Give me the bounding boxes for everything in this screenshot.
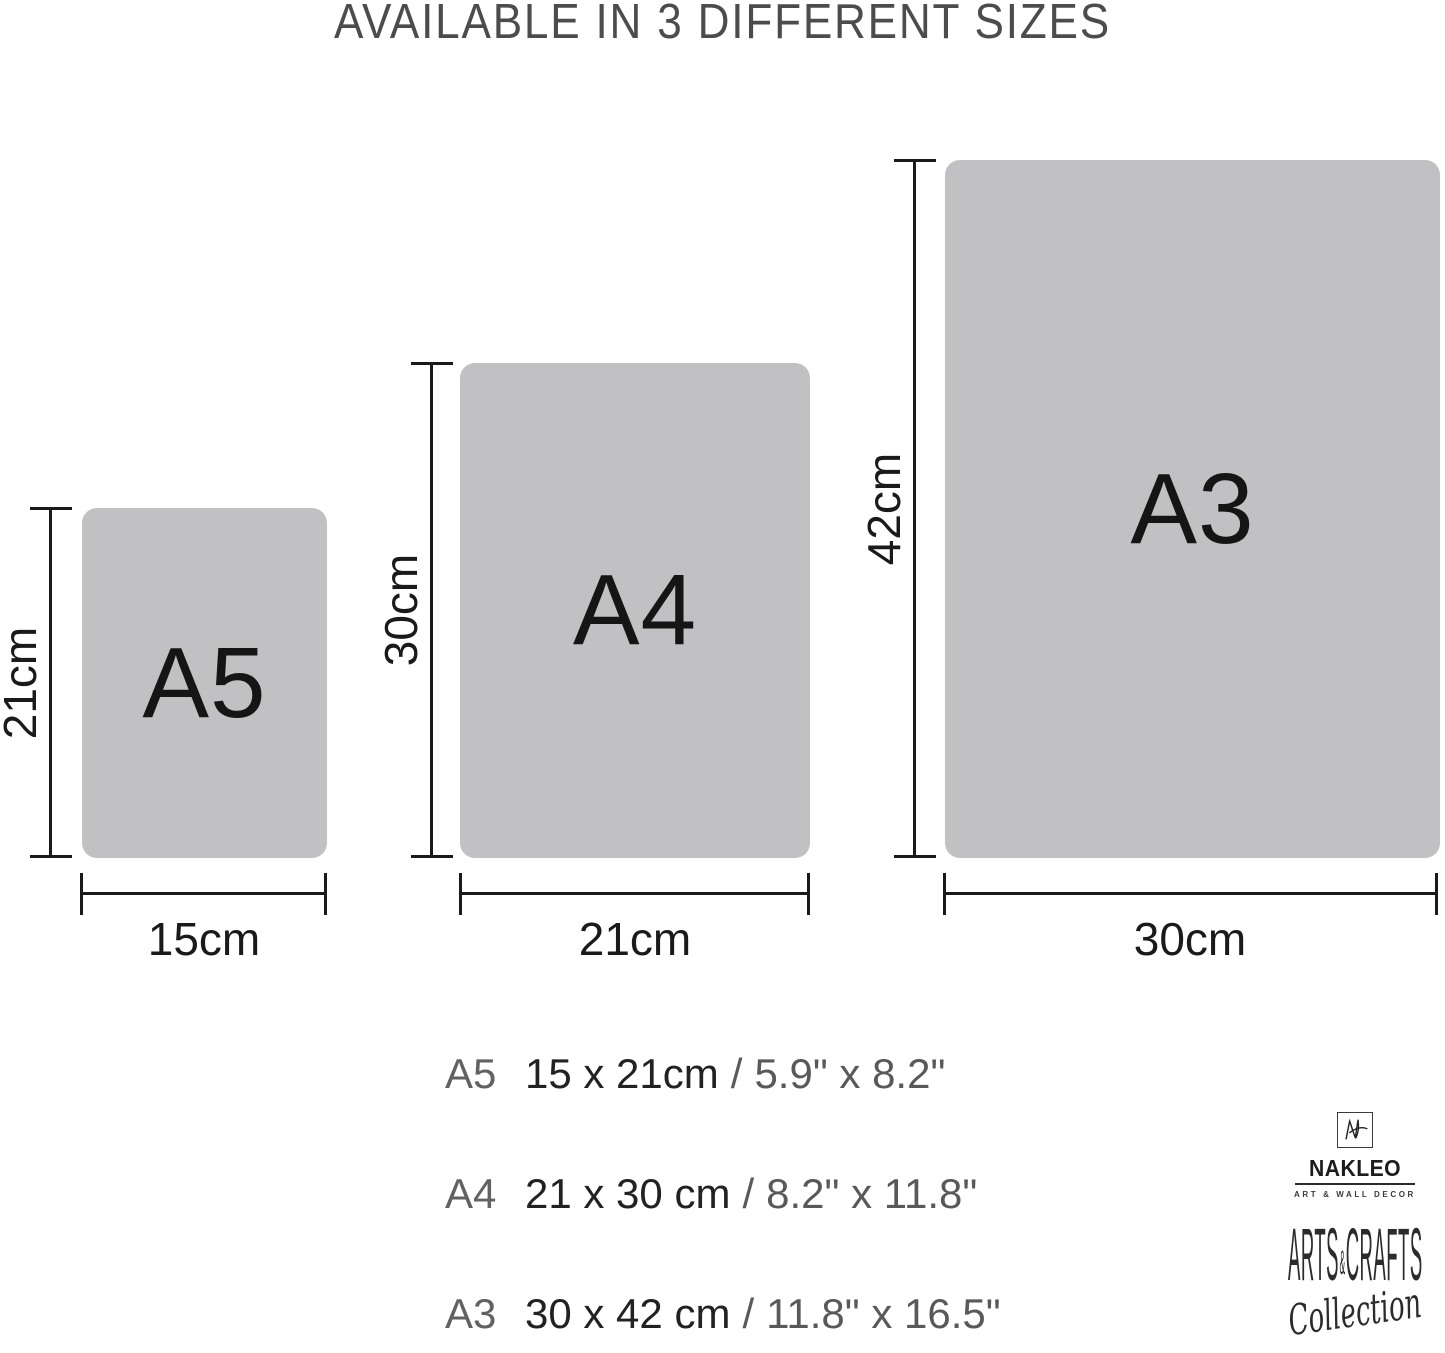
size-panel-a5: A5 xyxy=(82,508,327,858)
legend-imperial-a3: 11.8" x 16.5" xyxy=(766,1290,1001,1338)
dimension-cap xyxy=(459,873,462,915)
a4-width-dimension-line xyxy=(459,892,810,895)
dimension-cap xyxy=(894,159,936,162)
a4-width-label: 21cm xyxy=(515,912,755,966)
legend-separator: / xyxy=(731,1050,743,1098)
legend-imperial-a4: 8.2" x 11.8" xyxy=(766,1170,977,1218)
dimension-cap xyxy=(80,873,83,915)
panel-a3-label: A3 xyxy=(1130,452,1254,567)
brand-name: NAKLEO xyxy=(1309,1157,1401,1179)
ampersand-glyph: & xyxy=(1339,1243,1345,1283)
size-panel-a3: A3 xyxy=(945,160,1440,858)
page-title: AVAILABLE IN 3 DIFFERENT SIZES xyxy=(72,0,1373,50)
brand-divider xyxy=(1295,1183,1415,1185)
dimension-cap xyxy=(943,873,946,915)
dimension-cap xyxy=(411,855,453,858)
legend-code-a5: A5 xyxy=(445,1050,525,1098)
a5-width-dimension-line xyxy=(80,892,327,895)
collection-part1: ARTS xyxy=(1288,1227,1339,1283)
panel-a5-label: A5 xyxy=(142,626,266,741)
a4-height-dimension-line xyxy=(430,362,433,858)
dimension-cap xyxy=(1435,873,1438,915)
legend-row-a3: A3 30 x 42 cm / 11.8" x 16.5" xyxy=(445,1290,1001,1338)
nl-monogram-icon xyxy=(1337,1112,1373,1148)
size-panel-a4: A4 xyxy=(460,363,810,858)
dimension-cap xyxy=(894,855,936,858)
a5-height-label: 21cm xyxy=(0,627,47,739)
legend-code-a4: A4 xyxy=(445,1170,525,1218)
legend-code-a3: A3 xyxy=(445,1290,525,1338)
panel-a4-label: A4 xyxy=(573,553,697,668)
a3-height-label: 42cm xyxy=(857,453,911,565)
size-guide-infographic: AVAILABLE IN 3 DIFFERENT SIZES A5 21cm 1… xyxy=(0,0,1445,1353)
legend-row-a4: A4 21 x 30 cm / 8.2" x 11.8" xyxy=(445,1170,977,1218)
legend-metric-a3: 30 x 42 cm xyxy=(525,1290,730,1338)
dimension-cap xyxy=(30,855,72,858)
dimension-cap xyxy=(30,507,72,510)
a5-width-label: 15cm xyxy=(84,912,324,966)
collection-part2: CRAFTS xyxy=(1345,1227,1422,1283)
a3-height-dimension-line xyxy=(913,159,916,858)
a4-height-label: 30cm xyxy=(374,554,428,666)
a5-height-dimension-line xyxy=(49,507,52,858)
legend-metric-a5: 15 x 21cm xyxy=(525,1050,719,1098)
a3-width-label: 30cm xyxy=(1070,912,1310,966)
legend-row-a5: A5 15 x 21cm / 5.9" x 8.2" xyxy=(445,1050,945,1098)
legend-imperial-a5: 5.9" x 8.2" xyxy=(754,1050,945,1098)
dimension-cap xyxy=(411,362,453,365)
legend-metric-a4: 21 x 30 cm xyxy=(525,1170,730,1218)
a3-width-dimension-line xyxy=(943,892,1438,895)
brand-block: NAKLEO ART & WALL DECOR ARTS & CRAFTS Co… xyxy=(1287,1112,1423,1336)
collection-wordmark: ARTS & CRAFTS xyxy=(1288,1227,1423,1283)
dimension-cap xyxy=(324,873,327,915)
dimension-cap xyxy=(807,873,810,915)
brand-tagline: ART & WALL DECOR xyxy=(1294,1190,1416,1199)
legend-separator: / xyxy=(742,1170,754,1218)
legend-separator: / xyxy=(742,1290,754,1338)
